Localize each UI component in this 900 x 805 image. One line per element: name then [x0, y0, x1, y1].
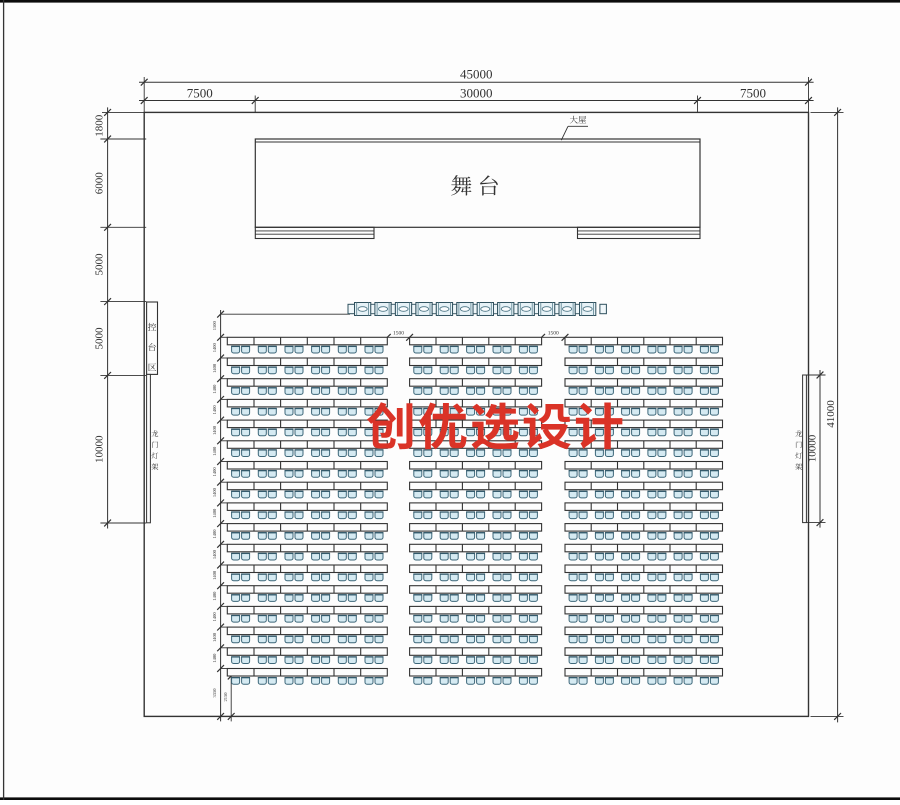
svg-text:10000: 10000: [94, 435, 106, 463]
svg-text:1800: 1800: [94, 114, 106, 137]
svg-text:45000: 45000: [460, 67, 493, 82]
svg-text:1400: 1400: [212, 467, 217, 477]
svg-text:1400: 1400: [212, 405, 217, 415]
svg-text:1500: 1500: [548, 331, 559, 337]
svg-text:1400: 1400: [212, 612, 217, 622]
svg-text:5000: 5000: [94, 253, 106, 276]
svg-text:2150: 2150: [223, 692, 228, 702]
svg-text:7500: 7500: [187, 86, 213, 101]
svg-text:1400: 1400: [212, 425, 217, 435]
svg-text:1400: 1400: [212, 508, 217, 518]
svg-text:1500: 1500: [393, 331, 404, 337]
svg-text:1400: 1400: [212, 529, 217, 539]
svg-text:1500: 1500: [212, 320, 217, 330]
svg-text:7500: 7500: [740, 86, 766, 101]
svg-text:1400: 1400: [212, 549, 217, 559]
svg-text:1400: 1400: [212, 487, 217, 497]
svg-text:1400: 1400: [212, 591, 217, 601]
svg-text:1400: 1400: [212, 342, 217, 352]
svg-text:30000: 30000: [460, 86, 493, 101]
svg-text:10000: 10000: [806, 434, 818, 462]
svg-text:5000: 5000: [94, 327, 106, 350]
svg-text:1400: 1400: [212, 632, 217, 642]
svg-text:3350: 3350: [212, 688, 217, 698]
svg-text:1400: 1400: [212, 653, 217, 663]
svg-text:1400: 1400: [212, 446, 217, 456]
svg-text:41000: 41000: [825, 400, 837, 428]
svg-text:1400: 1400: [212, 384, 217, 394]
svg-text:1400: 1400: [212, 570, 217, 580]
svg-text:6000: 6000: [94, 172, 106, 195]
svg-text:1400: 1400: [212, 363, 217, 373]
